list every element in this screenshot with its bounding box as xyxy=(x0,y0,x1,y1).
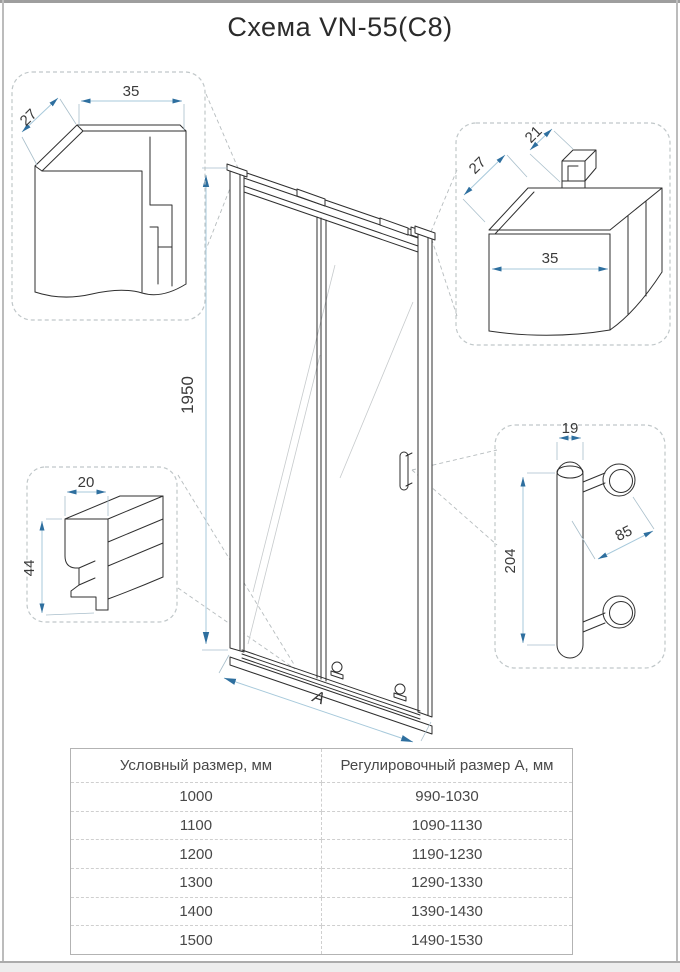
adjust-range: 990-1030 xyxy=(322,783,573,812)
dim-top-right-top: 21 xyxy=(522,123,546,147)
detail-bottom-left-profile: 20 44 xyxy=(21,467,177,622)
door-panel-divider xyxy=(317,217,326,681)
detail-handle: 19 204 85 xyxy=(495,420,665,668)
detail-top-right-profile: 21 27 35 xyxy=(456,123,670,345)
adjust-range: 1190-1230 xyxy=(322,840,573,869)
size-table: Условный размер, мм Регулировочный разме… xyxy=(70,748,573,955)
door-elevation: 1950 A xyxy=(178,164,435,742)
table-row: 1500 1490-1530 xyxy=(71,926,573,955)
rail-roller xyxy=(332,662,342,672)
leader-lines xyxy=(178,94,497,669)
table-row: 1000 990-1030 xyxy=(71,783,573,812)
table-row: 1300 1290-1330 xyxy=(71,868,573,897)
door-right-post xyxy=(418,233,432,717)
door-left-stile xyxy=(230,167,244,652)
size-table-header-nominal: Условный размер, мм xyxy=(71,749,322,783)
dim-handle-length: 204 xyxy=(502,548,519,573)
door-top-track xyxy=(244,172,418,252)
nominal-size: 1100 xyxy=(71,811,322,840)
door-handle xyxy=(400,452,412,490)
nominal-size: 1500 xyxy=(71,926,322,955)
size-table-header-adjust: Регулировочный размер А, мм xyxy=(322,749,573,783)
dim-bottom-left-height: 44 xyxy=(21,560,38,577)
detail-top-left-profile: 35 27 xyxy=(12,72,205,320)
dim-door-height: 1950 xyxy=(178,376,197,414)
adjust-range: 1290-1330 xyxy=(322,868,573,897)
dim-top-left-width: 35 xyxy=(123,83,140,100)
dim-handle-width: 19 xyxy=(562,420,579,437)
adjust-range: 1090-1130 xyxy=(322,811,573,840)
size-table-header-row: Условный размер, мм Регулировочный разме… xyxy=(71,749,573,783)
nominal-size: 1400 xyxy=(71,897,322,926)
dim-top-left-depth: 27 xyxy=(17,106,41,130)
rail-roller xyxy=(395,684,405,694)
nominal-size: 1200 xyxy=(71,840,322,869)
nominal-size: 1300 xyxy=(71,868,322,897)
dim-top-right-width: 35 xyxy=(542,250,559,267)
table-row: 1400 1390-1430 xyxy=(71,897,573,926)
adjust-range: 1490-1530 xyxy=(322,926,573,955)
table-row: 1100 1090-1130 xyxy=(71,811,573,840)
dim-bottom-left-width: 20 xyxy=(78,474,95,491)
handle-bar xyxy=(557,462,583,658)
table-row: 1200 1190-1230 xyxy=(71,840,573,869)
nominal-size: 1000 xyxy=(71,783,322,812)
adjust-range: 1390-1430 xyxy=(322,897,573,926)
